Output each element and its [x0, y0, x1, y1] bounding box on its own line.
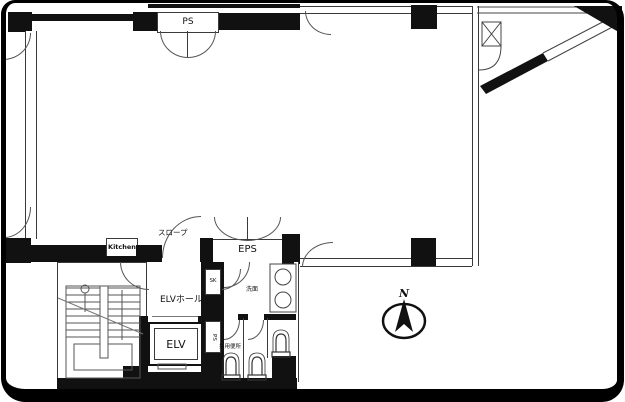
toilet-icon: [272, 330, 290, 357]
staircase: [58, 285, 143, 378]
chamfer-corner: [477, 6, 622, 94]
plan-line-art: [0, 0, 625, 402]
elv-counterweight: [158, 364, 186, 369]
toilet-icon: [248, 353, 266, 380]
duct-x-icon: [479, 22, 501, 70]
north-arrow-icon: [383, 299, 425, 338]
toilet-icon: [222, 353, 240, 380]
floor-plan: PS Kitchen スロープ EPS ELVホール ELV: [0, 0, 625, 402]
basin-icon: [270, 264, 296, 312]
